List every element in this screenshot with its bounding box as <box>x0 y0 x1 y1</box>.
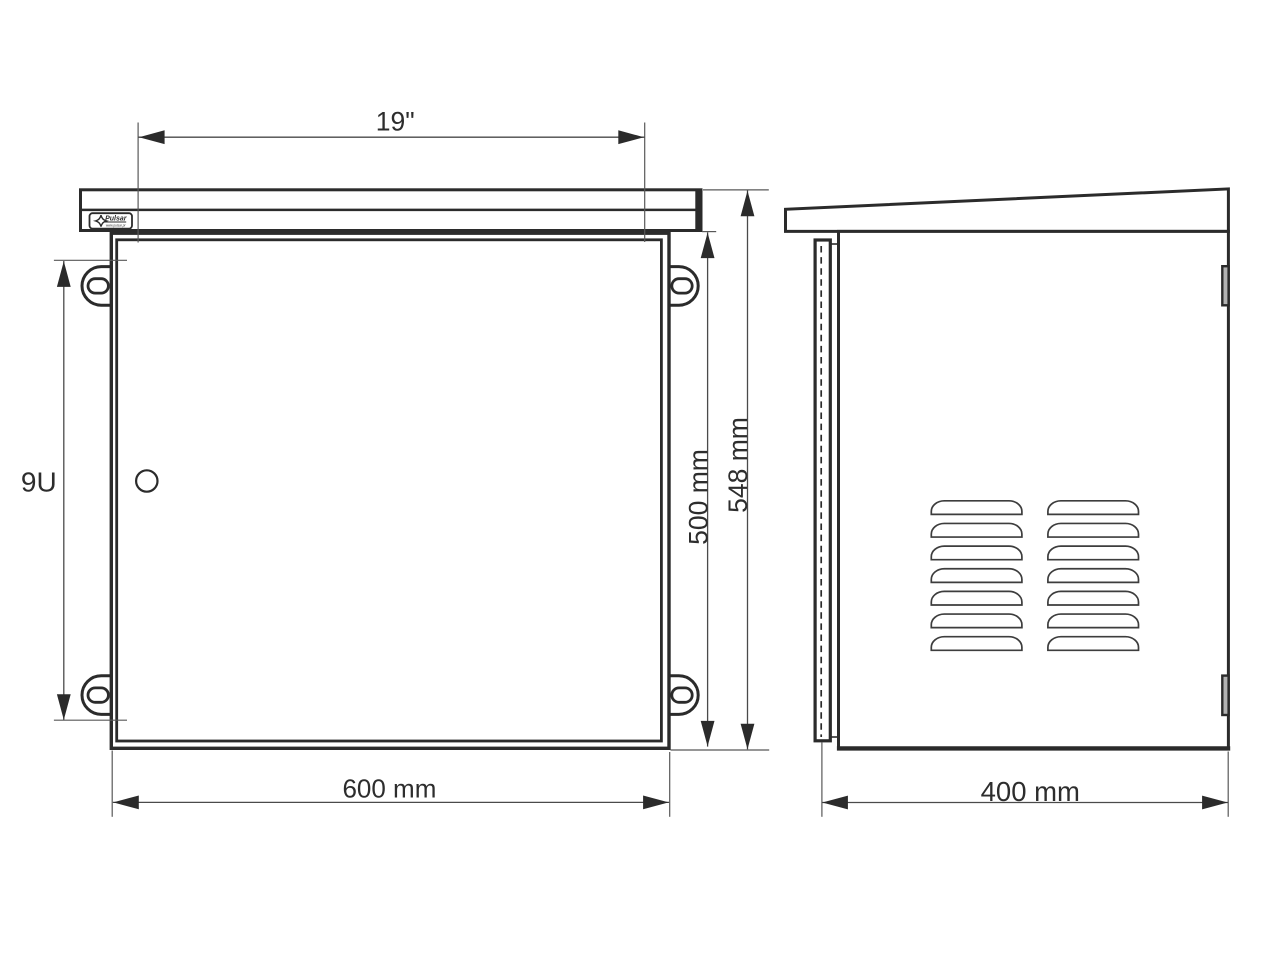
svg-text:www.pulsar.pl: www.pulsar.pl <box>106 224 126 228</box>
svg-text:500 mm: 500 mm <box>683 449 713 545</box>
svg-text:548 mm: 548 mm <box>723 417 753 513</box>
svg-text:600 mm: 600 mm <box>342 773 436 803</box>
svg-text:19": 19" <box>376 107 415 137</box>
svg-text:400 mm: 400 mm <box>981 776 1080 807</box>
svg-text:9U: 9U <box>21 467 57 498</box>
